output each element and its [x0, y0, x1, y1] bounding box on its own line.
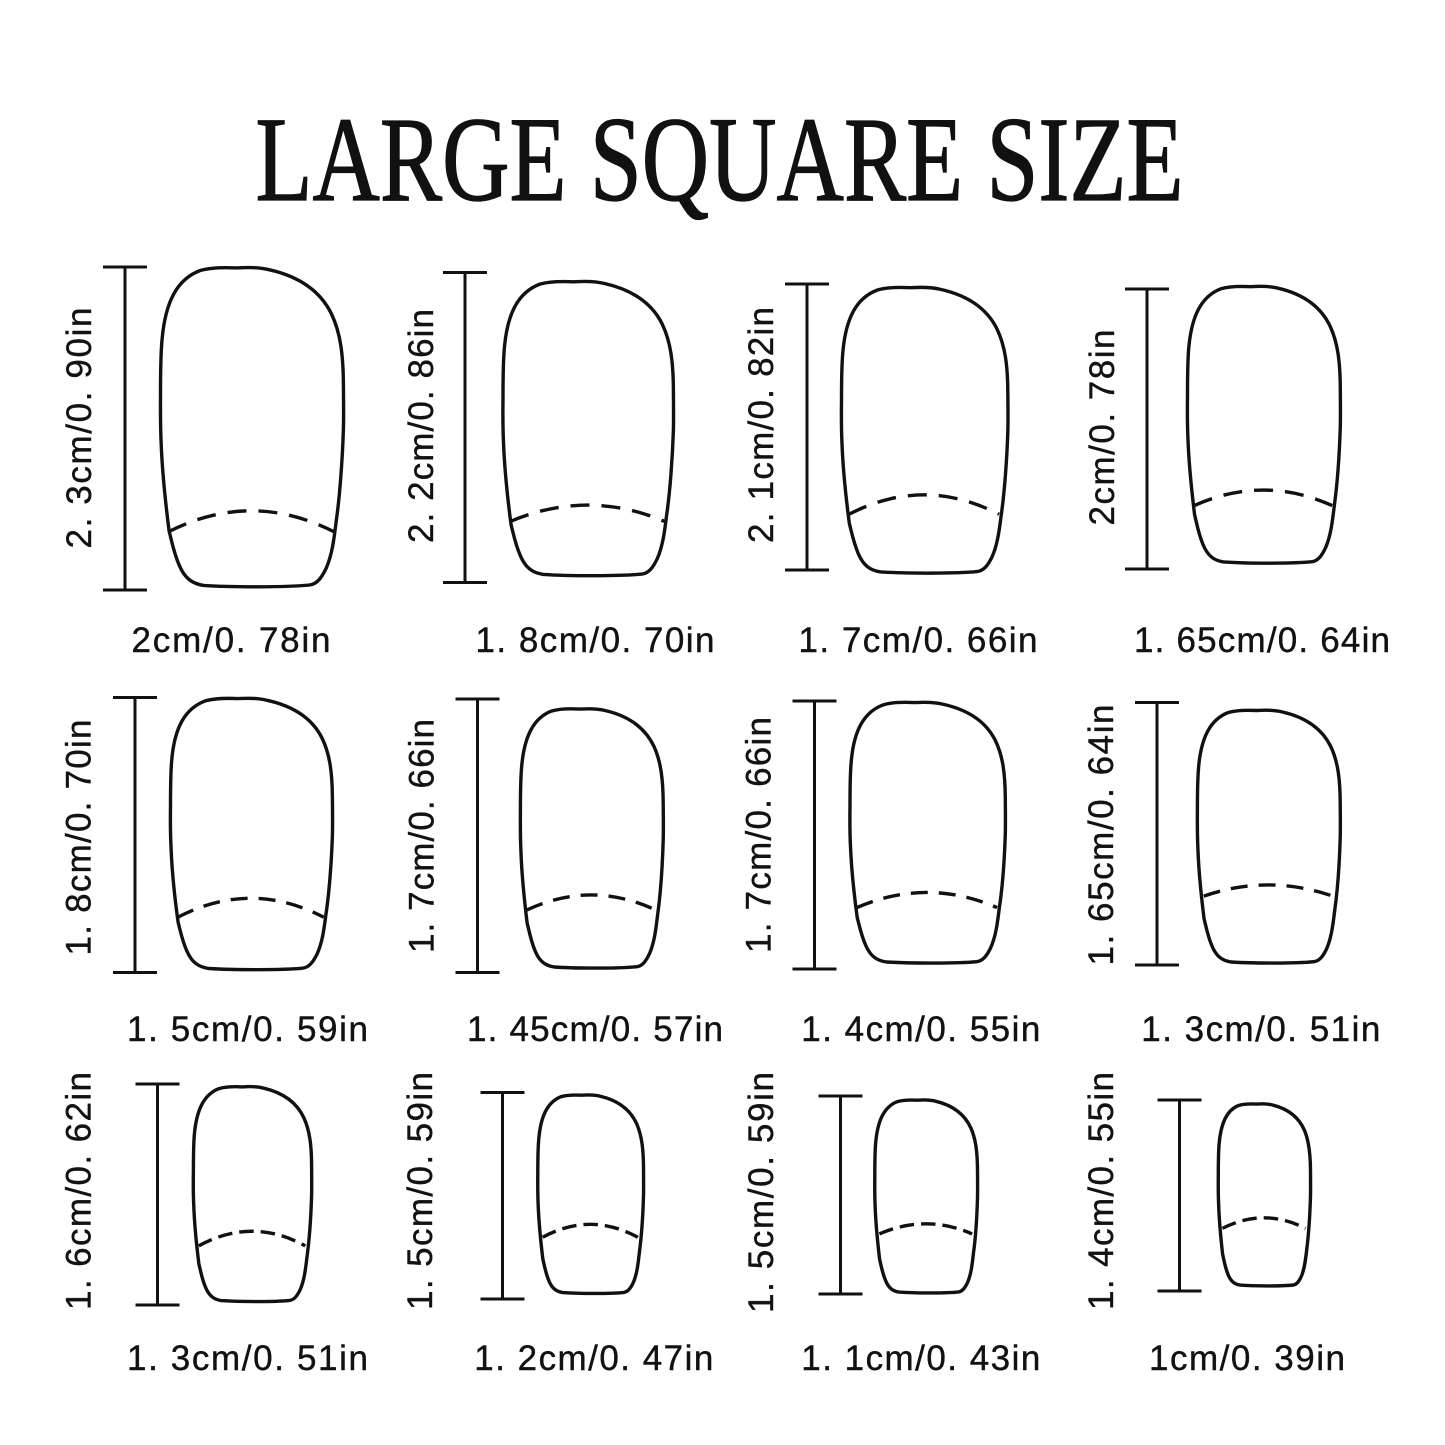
svg-text:1. 1cm/0. 43in: 1. 1cm/0. 43in [801, 1339, 1040, 1378]
svg-text:1. 8cm/0. 70in: 1. 8cm/0. 70in [476, 621, 715, 660]
svg-text:1. 7cm/0. 66in: 1. 7cm/0. 66in [799, 621, 1038, 660]
svg-text:1. 65cm/0. 64in: 1. 65cm/0. 64in [1134, 621, 1390, 660]
svg-text:1. 2cm/0. 47in: 1. 2cm/0. 47in [474, 1339, 713, 1378]
svg-text:1. 6cm/0. 62in: 1. 6cm/0. 62in [60, 1072, 99, 1310]
svg-text:2cm/0. 78in: 2cm/0. 78in [132, 621, 331, 660]
svg-text:1. 5cm/0. 59in: 1. 5cm/0. 59in [742, 1072, 781, 1313]
svg-text:1. 3cm/0. 51in: 1. 3cm/0. 51in [127, 1339, 368, 1378]
svg-text:1. 8cm/0. 70in: 1. 8cm/0. 70in [60, 720, 99, 956]
svg-text:1cm/0. 39in: 1cm/0. 39in [1149, 1339, 1345, 1378]
svg-text:1. 5cm/0. 59in: 1. 5cm/0. 59in [127, 1010, 368, 1049]
svg-text:1. 45cm/0. 57in: 1. 45cm/0. 57in [467, 1010, 723, 1049]
svg-text:2. 1cm/0. 82in: 2. 1cm/0. 82in [742, 307, 781, 543]
svg-text:1. 3cm/0. 51in: 1. 3cm/0. 51in [1141, 1010, 1380, 1049]
svg-text:2. 3cm/0. 90in: 2. 3cm/0. 90in [60, 308, 99, 549]
svg-text:1. 65cm/0. 64in: 1. 65cm/0. 64in [1082, 705, 1121, 966]
svg-text:1. 7cm/0. 66in: 1. 7cm/0. 66in [740, 717, 779, 953]
svg-text:1. 5cm/0. 59in: 1. 5cm/0. 59in [401, 1072, 440, 1310]
svg-text:LARGE SQUARE SIZE: LARGE SQUARE SIZE [256, 93, 1184, 227]
svg-text:2. 2cm/0. 86in: 2. 2cm/0. 86in [402, 309, 441, 543]
svg-text:1. 4cm/0. 55in: 1. 4cm/0. 55in [1082, 1072, 1121, 1310]
svg-text:1. 7cm/0. 66in: 1. 7cm/0. 66in [403, 719, 442, 953]
svg-text:2cm/0. 78in: 2cm/0. 78in [1083, 330, 1122, 526]
svg-text:1. 4cm/0. 55in: 1. 4cm/0. 55in [801, 1010, 1040, 1049]
